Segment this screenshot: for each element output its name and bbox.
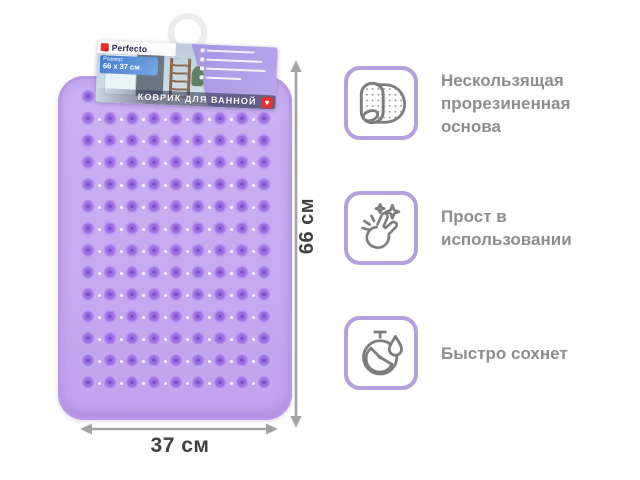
mat-dot (120, 228, 123, 231)
mat-dot (252, 184, 255, 187)
mat-dot (142, 382, 145, 385)
suction-cup (212, 287, 228, 303)
suction-cup (124, 133, 140, 149)
feature-row-easy-use: Прост в использовании (344, 191, 626, 265)
suction-cup (102, 177, 118, 193)
mat-dot (120, 184, 123, 187)
mat-dot (186, 140, 189, 143)
mat-dot (142, 338, 145, 341)
width-dimension-label: 37 см (120, 434, 240, 458)
brand-logo-icon (101, 43, 109, 51)
mat-dot (98, 382, 101, 385)
mat-dot (98, 228, 101, 231)
suction-cup (190, 265, 206, 281)
suction-cup (168, 177, 184, 193)
mat-pattern (58, 76, 292, 420)
mat-dot (252, 272, 255, 275)
suction-cup (190, 221, 206, 237)
mat-dot (142, 228, 145, 231)
mat-dot (98, 118, 101, 121)
mat-dot (120, 338, 123, 341)
mat-dot (164, 118, 167, 121)
suction-cup (212, 243, 228, 259)
suction-cup (168, 331, 184, 347)
suction-cup (168, 155, 184, 171)
suction-cup (212, 221, 228, 237)
suction-cup (212, 199, 228, 215)
mat-dot (98, 338, 101, 341)
mat-dot (186, 162, 189, 165)
mat-dot (142, 118, 145, 121)
mat-dot (164, 338, 167, 341)
suction-cup (212, 133, 228, 149)
suction-cup (256, 287, 272, 303)
suction-cup (80, 111, 96, 127)
mat-dot (142, 184, 145, 187)
suction-cup (190, 133, 206, 149)
suction-cup (234, 375, 250, 391)
mat-dot (120, 294, 123, 297)
label-feature-bullets (199, 48, 272, 87)
suction-cup (102, 221, 118, 237)
mat-dot (120, 206, 123, 209)
suction-cup (234, 177, 250, 193)
suction-cup (102, 375, 118, 391)
mat-dot (208, 316, 211, 319)
suction-cup (256, 221, 272, 237)
mat-dot (230, 140, 233, 143)
mat-dot (230, 162, 233, 165)
feature-row-nonslip: Нескользящая прорезиненная основа (344, 66, 626, 140)
suction-cup (212, 111, 228, 127)
suction-cup (234, 265, 250, 281)
label-bullet (199, 75, 271, 82)
suction-cup (234, 133, 250, 149)
mat-dot (142, 250, 145, 253)
mat-dot (164, 360, 167, 363)
mat-dot (98, 360, 101, 363)
suction-cup (256, 309, 272, 325)
mat-dot (98, 272, 101, 275)
suction-cup (146, 133, 162, 149)
mat-dot (120, 162, 123, 165)
mat-dot (252, 118, 255, 121)
suction-cup (212, 353, 228, 369)
suction-cup (190, 287, 206, 303)
suction-cup (146, 177, 162, 193)
suction-cup (256, 331, 272, 347)
mat-dot (230, 316, 233, 319)
snap-fingers-icon (353, 200, 409, 256)
feature-text: Нескользящая прорезиненная основа (441, 69, 626, 138)
mat-dot (252, 162, 255, 165)
mat-dot (252, 316, 255, 319)
suction-cup (190, 243, 206, 259)
mat-dot (208, 382, 211, 385)
suction-cup (256, 199, 272, 215)
suction-cup (124, 111, 140, 127)
mat-dot (208, 140, 211, 143)
mat-dot (208, 184, 211, 187)
mat-dot (120, 272, 123, 275)
mat-dot (164, 382, 167, 385)
mat-dot (164, 162, 167, 165)
mat-dot (208, 272, 211, 275)
suction-cup (146, 243, 162, 259)
suction-cup (256, 353, 272, 369)
mat-dot (98, 184, 101, 187)
suction-cup (212, 309, 228, 325)
suction-cup (80, 287, 96, 303)
suction-cup (168, 111, 184, 127)
mat-dot (142, 272, 145, 275)
mat-dot (230, 228, 233, 231)
suction-cup (256, 243, 272, 259)
mat-dot (252, 206, 255, 209)
label-bullet (200, 66, 272, 73)
suction-cup (234, 287, 250, 303)
suction-cup (168, 375, 184, 391)
suction-cup (256, 177, 272, 193)
mat-dot (186, 272, 189, 275)
suction-cup (102, 243, 118, 259)
suction-cup (234, 155, 250, 171)
suction-cup (124, 243, 140, 259)
mat-dot (252, 338, 255, 341)
suction-cup (256, 155, 272, 171)
mat-dot (142, 206, 145, 209)
stopwatch-droplet-icon (353, 325, 409, 381)
mat-dot (208, 228, 211, 231)
mat-dot (164, 206, 167, 209)
mat-dot (186, 294, 189, 297)
mat-dot (230, 382, 233, 385)
suction-cup (80, 89, 96, 105)
suction-cup (146, 331, 162, 347)
suction-cup (124, 221, 140, 237)
mat-dot (142, 162, 145, 165)
mat-dot (120, 360, 123, 363)
mat-dot (230, 338, 233, 341)
suction-cup (168, 199, 184, 215)
feature-text: Быстро сохнет (441, 342, 626, 365)
mat-dot (142, 294, 145, 297)
bullet-icon (200, 66, 204, 70)
suction-cup (212, 331, 228, 347)
suction-cup (146, 155, 162, 171)
feature-card (344, 316, 418, 390)
product-title: КОВРИК ДЛЯ ВАННОЙ (138, 92, 257, 107)
suction-cup (124, 309, 140, 325)
suction-cup (190, 155, 206, 171)
suction-cup (124, 331, 140, 347)
mat-dot (98, 140, 101, 143)
mat-dot (230, 184, 233, 187)
mat-dot (120, 316, 123, 319)
suction-cup (80, 177, 96, 193)
suction-cup (124, 155, 140, 171)
suction-cup (80, 309, 96, 325)
mat-dot (98, 316, 101, 319)
suction-cup (80, 375, 96, 391)
suction-cup (124, 353, 140, 369)
suction-cup (124, 375, 140, 391)
mat-dot (230, 118, 233, 121)
suction-cup (168, 287, 184, 303)
size-box: Размер: 66 x 37 см (100, 55, 159, 75)
suction-cup (234, 331, 250, 347)
bath-mat (58, 76, 292, 420)
mat-dot (186, 382, 189, 385)
suction-cup (256, 375, 272, 391)
suction-cup (234, 111, 250, 127)
mat-dot (252, 140, 255, 143)
suction-cup (124, 177, 140, 193)
mat-dot (230, 272, 233, 275)
suction-cup (102, 265, 118, 281)
suction-cup (190, 309, 206, 325)
suction-cup (168, 265, 184, 281)
feature-card (344, 66, 418, 140)
mat-dot (164, 140, 167, 143)
suction-cup (146, 111, 162, 127)
mat-dot (230, 294, 233, 297)
suction-cup (80, 199, 96, 215)
mat-dot (252, 228, 255, 231)
suction-cup (146, 353, 162, 369)
brand-name: Perfecto (112, 42, 148, 53)
mat-dot (208, 162, 211, 165)
suction-cup (212, 375, 228, 391)
mat-dot (186, 316, 189, 319)
suction-cup (146, 265, 162, 281)
mat-dot (208, 118, 211, 121)
suction-cup (168, 221, 184, 237)
suction-cup (102, 199, 118, 215)
mat-dot (208, 206, 211, 209)
mat-dot (252, 382, 255, 385)
mat-dot (120, 140, 123, 143)
suction-cup (80, 133, 96, 149)
suction-cup (102, 155, 118, 171)
suction-cup (80, 331, 96, 347)
suction-cup (80, 243, 96, 259)
mat-dot (98, 250, 101, 253)
suction-cup (168, 309, 184, 325)
suction-cup (234, 221, 250, 237)
label-bullet (200, 57, 272, 64)
suction-cup (168, 243, 184, 259)
feature-row-dries-fast: Быстро сохнет (344, 316, 626, 390)
mat-dot (164, 184, 167, 187)
suction-cup (190, 331, 206, 347)
suction-cup (234, 199, 250, 215)
suction-cup (190, 353, 206, 369)
mat-dot (164, 316, 167, 319)
mat-dot (186, 250, 189, 253)
suction-cup (212, 265, 228, 281)
suction-cup (102, 309, 118, 325)
textured-mat-icon (353, 75, 409, 131)
mat-dot (120, 382, 123, 385)
suction-cup (102, 287, 118, 303)
suction-cup (190, 111, 206, 127)
mat-dot (230, 360, 233, 363)
mat-dot (98, 206, 101, 209)
feature-text: Прост в использовании (441, 205, 626, 251)
suction-cup (190, 375, 206, 391)
mat-dot (230, 206, 233, 209)
mat-dot (208, 360, 211, 363)
mat-dot (252, 360, 255, 363)
suction-cup (234, 243, 250, 259)
suction-cup (146, 375, 162, 391)
suction-cup (146, 199, 162, 215)
suction-cup (146, 221, 162, 237)
suction-cup (102, 133, 118, 149)
suction-cup (124, 265, 140, 281)
mat-dot (164, 250, 167, 253)
mat-dot (230, 250, 233, 253)
suction-cup (212, 155, 228, 171)
size-value: 66 x 37 см (103, 62, 155, 72)
mat-dot (186, 118, 189, 121)
mat-dot (252, 250, 255, 253)
bullet-icon (199, 75, 203, 79)
mat-dot (164, 294, 167, 297)
suction-cup (80, 155, 96, 171)
mat-dot (208, 250, 211, 253)
mat-dot (98, 294, 101, 297)
suction-cup (80, 221, 96, 237)
mat-dot (120, 250, 123, 253)
mat-dot (252, 294, 255, 297)
suction-cup (190, 177, 206, 193)
suction-cup (80, 265, 96, 281)
mat-dot (164, 228, 167, 231)
suction-cup (190, 199, 206, 215)
mat-dot (186, 184, 189, 187)
package-label: Perfecto Размер: 66 x 37 см КОВРИК ДЛЯ В… (95, 40, 277, 109)
mat-dot (186, 206, 189, 209)
suction-cup (102, 331, 118, 347)
bullet-icon (200, 57, 204, 61)
mat-dot (120, 118, 123, 121)
mat-dot (164, 272, 167, 275)
mat-dot (208, 294, 211, 297)
suction-cup (256, 111, 272, 127)
heart-badge-icon: ♥ (261, 96, 272, 107)
suction-cup (102, 353, 118, 369)
mat-dot (208, 338, 211, 341)
bullet-icon (201, 48, 205, 52)
height-dimension-label: 66 см (296, 186, 322, 266)
suction-cup (168, 353, 184, 369)
mat-dot (142, 140, 145, 143)
suction-cup (212, 177, 228, 193)
suction-cup (102, 111, 118, 127)
suction-cup (124, 199, 140, 215)
mat-dot (98, 162, 101, 165)
suction-cup (80, 353, 96, 369)
mat-dot (186, 360, 189, 363)
suction-cup (146, 287, 162, 303)
suction-cup (146, 309, 162, 325)
suction-cup (234, 309, 250, 325)
suction-cup (124, 287, 140, 303)
mat-dot (142, 360, 145, 363)
suction-cup (234, 353, 250, 369)
mat-dot (142, 316, 145, 319)
suction-cup (256, 133, 272, 149)
mat-dot (186, 338, 189, 341)
mat-dot (186, 228, 189, 231)
feature-card (344, 191, 418, 265)
suction-cup (256, 265, 272, 281)
suction-cup (168, 133, 184, 149)
